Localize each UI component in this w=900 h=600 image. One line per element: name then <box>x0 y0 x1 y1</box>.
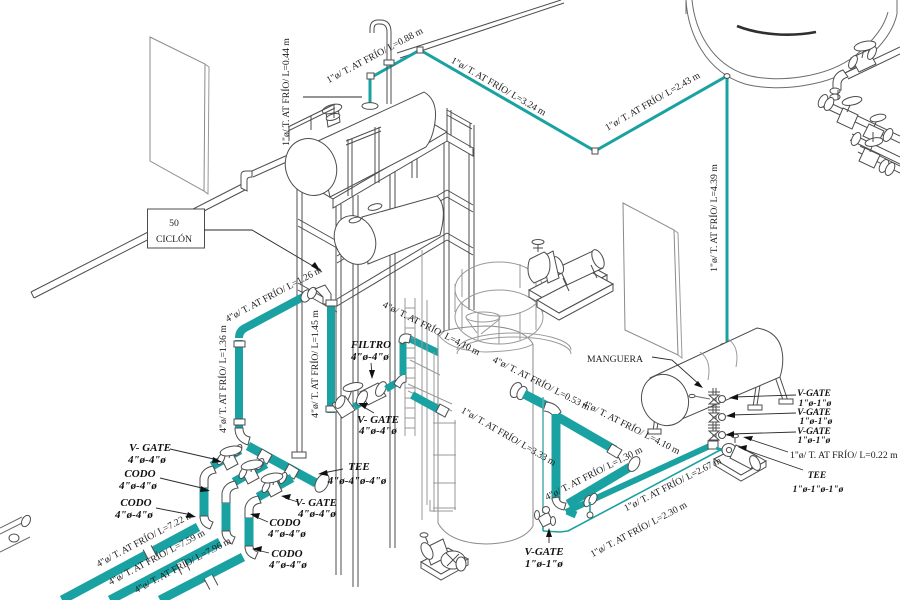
svg-text:4"ø-4"ø: 4"ø-4"ø <box>358 425 397 437</box>
svg-text:4"ø-4"ø: 4"ø-4"ø <box>350 351 389 363</box>
svg-text:TEE: TEE <box>348 461 369 473</box>
svg-text:TEE: TEE <box>808 471 826 481</box>
svg-text:1"ø/ T. AT FRÍO/ L=0.22 m: 1"ø/ T. AT FRÍO/ L=0.22 m <box>790 449 898 461</box>
svg-text:4"ø-4"ø: 4"ø-4"ø <box>114 509 153 521</box>
svg-text:CODO: CODO <box>120 497 151 509</box>
svg-text:4"ø-4"ø: 4"ø-4"ø <box>297 508 336 520</box>
svg-text:4"ø/ T. AT FRÍO/ L=1.45 m: 4"ø/ T. AT FRÍO/ L=1.45 m <box>309 310 321 418</box>
svg-text:1"ø-1"ø: 1"ø-1"ø <box>800 417 833 427</box>
svg-text:4"ø-4"ø: 4"ø-4"ø <box>127 454 166 466</box>
svg-text:FILTRO: FILTRO <box>350 339 391 351</box>
svg-text:4"ø/ T. AT FRÍO/ L=1.36 m: 4"ø/ T. AT FRÍO/ L=1.36 m <box>217 325 229 433</box>
svg-text:50: 50 <box>169 218 179 229</box>
svg-text:V- GATE: V- GATE <box>129 442 171 454</box>
svg-text:1"ø-1"ø: 1"ø-1"ø <box>798 436 831 446</box>
svg-text:1"ø-1"ø-1"ø: 1"ø-1"ø-1"ø <box>793 485 844 495</box>
svg-text:1"ø-1"ø: 1"ø-1"ø <box>525 558 563 570</box>
svg-text:V-GATE: V-GATE <box>797 389 831 399</box>
svg-text:1"ø/ T. AT FRÍO/ L=4.39 m: 1"ø/ T. AT FRÍO/ L=4.39 m <box>708 164 720 272</box>
svg-text:4"ø-4"ø: 4"ø-4"ø <box>118 480 157 492</box>
svg-text:1"ø/ T. AT FRÍO/ L=0.44 m: 1"ø/ T. AT FRÍO/ L=0.44 m <box>280 38 292 146</box>
svg-text:4"ø-4"ø-4"ø: 4"ø-4"ø-4"ø <box>327 475 387 487</box>
svg-text:V-GATE: V-GATE <box>524 546 563 558</box>
svg-text:MANGUERA: MANGUERA <box>587 354 643 365</box>
svg-text:CODO: CODO <box>124 468 155 480</box>
svg-text:4"ø-4"ø: 4"ø-4"ø <box>267 528 306 540</box>
svg-text:4"ø-4"ø: 4"ø-4"ø <box>268 559 307 571</box>
svg-text:CICLÓN: CICLÓN <box>156 233 192 245</box>
